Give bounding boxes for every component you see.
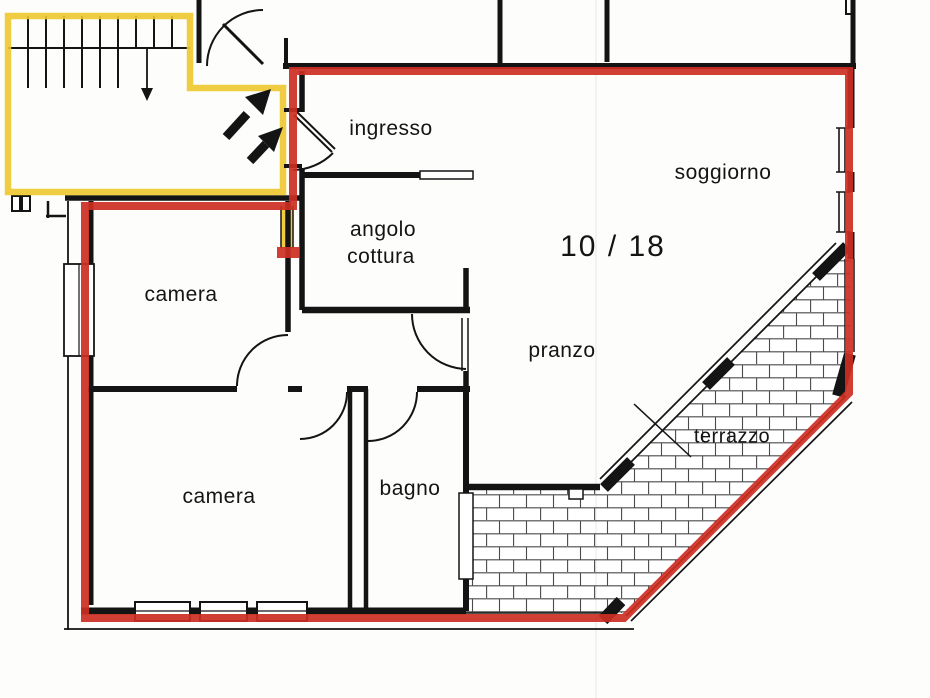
camera2-door-arc — [300, 392, 347, 439]
floor-plan-drawing — [0, 0, 930, 698]
bagno-window — [459, 493, 473, 579]
ingresso-counter — [420, 171, 473, 179]
apartment-walls — [64, 66, 856, 630]
room-label-camera-2: camera — [182, 485, 255, 509]
camera1-door-arc — [237, 335, 288, 386]
bagno-door-arc — [368, 392, 417, 441]
terrace-paving — [466, 252, 850, 613]
entry-direction-arrows-icon — [226, 89, 283, 161]
room-label-bagno: bagno — [380, 477, 441, 501]
room-label-camera-1: camera — [144, 283, 217, 307]
sheet-number: 10 / 18 — [560, 230, 666, 264]
stairs-down-arrow-icon — [141, 88, 153, 101]
room-label-pranzo: pranzo — [528, 339, 595, 363]
floor-plan: ingresso soggiorno angolo cottura 10 / 1… — [0, 0, 930, 698]
kitchen-door-leaf — [462, 318, 468, 371]
kitchen-door-arc — [412, 314, 466, 369]
stairwell-and-neighbor-walls — [8, 0, 853, 218]
room-label-soggiorno: soggiorno — [675, 161, 772, 185]
room-label-ingresso: ingresso — [349, 117, 432, 141]
room-label-terrazzo: terrazzo — [694, 426, 770, 449]
room-label-angolo-cottura-line2: cottura — [347, 245, 415, 269]
entrance-door-leaf — [294, 112, 335, 152]
room-label-angolo-cottura-line1: angolo — [350, 218, 416, 242]
neighbor-door-leaf — [223, 24, 263, 64]
